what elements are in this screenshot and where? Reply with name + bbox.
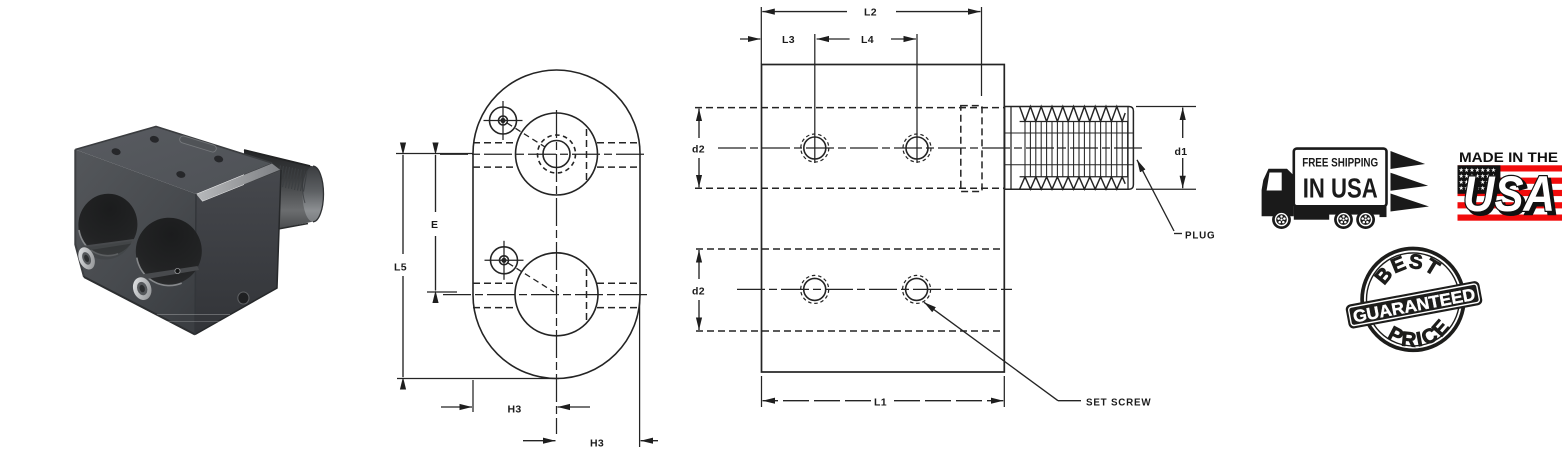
svg-text:MADE IN THE: MADE IN THE [1459,150,1558,165]
svg-text:FREE SHIPPING: FREE SHIPPING [1302,155,1378,169]
svg-text:L4: L4 [861,34,874,46]
svg-text:IN USA: IN USA [1303,173,1378,204]
svg-text:SET SCREW: SET SCREW [1086,397,1151,408]
svg-text:PLUG: PLUG [1185,231,1215,242]
svg-text:L3: L3 [782,34,795,46]
svg-text:E: E [431,219,438,231]
svg-text:d2: d2 [692,285,705,297]
svg-text:USA: USA [1463,166,1555,222]
svg-text:L2: L2 [864,7,877,19]
svg-text:L1: L1 [874,396,887,408]
svg-text:L5: L5 [394,262,407,274]
svg-text:H3: H3 [508,404,522,416]
svg-text:H3: H3 [590,438,604,450]
svg-text:d2: d2 [692,144,705,156]
svg-text:d1: d1 [1175,146,1188,158]
